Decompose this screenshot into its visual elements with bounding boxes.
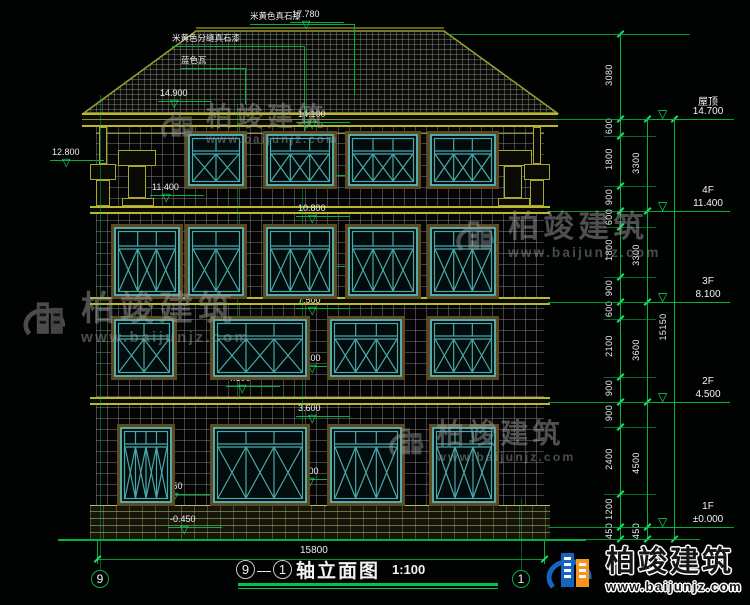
window	[213, 427, 307, 503]
column-shaft	[128, 166, 146, 198]
watermark: 柏竣建筑 www.baijunjz.com	[388, 420, 575, 464]
elevation-value: 14.900	[160, 88, 188, 98]
elevation-triangle-icon: ▽	[306, 477, 314, 488]
corner-pilaster	[530, 180, 544, 206]
dimension-value: 450	[631, 500, 641, 562]
dimension-chain-line	[620, 494, 621, 527]
watermark-site: www.baijunjz.com	[206, 133, 338, 146]
watermark-site: www.baijunjz.com	[508, 245, 661, 260]
column-base	[498, 198, 530, 206]
ground-line	[58, 539, 586, 541]
corner-capital	[524, 164, 550, 180]
window	[114, 227, 180, 296]
window	[348, 134, 418, 186]
site-logo: 柏竣建筑 www.baijunjz.com	[545, 543, 742, 599]
brand-site: www.baijunjz.com	[606, 579, 742, 594]
drawing-title: 9 — 1 轴立面图 1:100	[236, 556, 425, 583]
column-capital	[118, 150, 156, 166]
elevation-line	[168, 527, 222, 528]
elevation-triangle-icon: ▽	[62, 158, 70, 169]
elevation-value: 7.500	[298, 295, 321, 305]
dimension-chain-line	[620, 319, 621, 377]
title-scale: 1:100	[392, 562, 425, 577]
watermark: 柏竣建筑 www.baijunjz.com	[455, 212, 661, 261]
floor-elevation: ±0.000	[676, 514, 740, 525]
grid-bubble-9: 9	[91, 570, 109, 588]
elevation-triangle-icon: ▽	[302, 20, 310, 31]
column-base	[122, 198, 154, 206]
watermark-name: 柏竣建筑	[436, 420, 575, 448]
dimension-value: 3600	[631, 319, 641, 381]
elevation-line	[50, 160, 104, 161]
window	[330, 319, 402, 377]
elevation-value: 3.600	[298, 403, 321, 413]
axis-dash: —	[257, 562, 271, 578]
extension-line	[604, 319, 656, 320]
cad-elevation-drawing: 15800 9 1 9 — 1 轴立面图 1:100 柏竣建筑 www.baij…	[0, 0, 750, 605]
window-glazing	[430, 319, 496, 377]
watermark-logo-icon	[455, 213, 500, 260]
elevation-line	[150, 195, 204, 196]
window	[430, 319, 496, 377]
watermark-site: www.baijunjz.com	[436, 450, 575, 464]
window	[430, 134, 496, 186]
extension-line	[548, 402, 700, 403]
window-glazing	[266, 227, 334, 296]
leader-line	[181, 68, 245, 69]
elevation-triangle-icon: ▽	[308, 414, 316, 425]
elevation-value: -0.450	[170, 514, 196, 524]
watermark: 柏竣建筑 www.baijunjz.com	[160, 104, 338, 146]
leader-line	[250, 24, 354, 25]
extension-line	[604, 494, 656, 495]
column-shaft	[504, 166, 522, 198]
watermark-site: www.baijunjz.com	[81, 329, 250, 346]
elevation-line	[296, 308, 350, 309]
roof-outline	[0, 0, 750, 130]
leader-line	[172, 46, 304, 47]
title-underline-thin	[238, 588, 498, 589]
dimension-value: 3300	[631, 132, 641, 194]
extension-line	[604, 427, 656, 428]
leader-line	[354, 24, 355, 94]
elevation-line	[296, 216, 350, 217]
dimension-chain-line	[674, 119, 675, 539]
elevation-triangle-icon: ▽	[308, 214, 316, 225]
extension-line	[556, 119, 734, 120]
watermark-logo-icon	[22, 293, 72, 345]
window	[266, 227, 334, 296]
window-glazing	[348, 227, 418, 296]
extension-line	[604, 277, 656, 278]
dimension-chain-line	[620, 34, 621, 119]
elevation-value: 10.800	[298, 203, 326, 213]
elevation-triangle-icon: ▽	[238, 384, 246, 395]
material-label: 米黄色分缝真石漆	[172, 32, 240, 44]
window-glazing	[188, 227, 244, 296]
extension-line	[604, 377, 656, 378]
dimension-chain-line	[647, 302, 648, 402]
extension-line	[450, 34, 690, 35]
extension-line	[548, 302, 700, 303]
door	[120, 427, 172, 503]
floor-name: 3F	[682, 276, 734, 287]
floor-name: 2F	[682, 376, 734, 387]
floor-elevation: 8.100	[676, 289, 740, 300]
window-glazing	[120, 427, 172, 503]
material-label: 米黄色真石漆	[250, 10, 301, 22]
extension-line	[548, 527, 734, 528]
floor-elevation: 11.400	[676, 198, 740, 209]
extension-line	[604, 186, 656, 187]
window-glazing	[213, 427, 307, 503]
elevation-line	[296, 416, 350, 417]
window-glazing	[114, 227, 180, 296]
corner-post	[533, 127, 541, 164]
overall-width-dimension: 15800	[300, 545, 328, 556]
grid-bubble-1: 1	[512, 570, 530, 588]
corner-capital	[90, 164, 116, 180]
elevation-line	[226, 386, 280, 387]
dimension-chain-line	[620, 136, 621, 186]
watermark-logo-icon	[160, 105, 199, 146]
elevation-value: 12.800	[52, 147, 80, 157]
window-glazing	[330, 319, 402, 377]
dimension-chain-line	[647, 402, 648, 527]
extension-line	[604, 136, 656, 137]
elevation-value: 11.400	[152, 182, 179, 192]
floor-name: 1F	[682, 501, 734, 512]
brand-building-icon	[545, 543, 599, 599]
dimension-chain-line	[620, 427, 621, 494]
elevation-line	[290, 22, 344, 23]
axis-bubble-start: 9	[236, 560, 255, 579]
window-glazing	[348, 134, 418, 186]
floor-name: 4F	[682, 185, 734, 196]
dimension-value: 15150	[658, 296, 668, 358]
title-text: 轴立面图	[296, 556, 380, 583]
elevation-triangle-icon: ▽	[180, 525, 188, 536]
floor-elevation: 4.500	[676, 389, 740, 400]
watermark-logo-icon	[388, 421, 429, 464]
elevation-line	[158, 101, 212, 102]
extension-line	[556, 539, 700, 540]
brick-plinth	[90, 505, 550, 540]
watermark-name: 柏竣建筑	[508, 212, 661, 243]
elevation-triangle-icon: ▽	[308, 306, 316, 317]
elevation-triangle-icon: ▽	[162, 193, 170, 204]
dimension-value: 450	[604, 500, 614, 562]
window-glazing	[430, 134, 496, 186]
dimension-chain-line	[647, 119, 648, 211]
elevation-triangle-icon: ▽	[308, 364, 316, 375]
corner-pilaster	[96, 180, 110, 206]
watermark: 柏竣建筑 www.baijunjz.com	[22, 292, 250, 346]
material-label: 蓝色瓦	[181, 54, 207, 66]
window	[188, 227, 244, 296]
leader-line	[245, 68, 246, 104]
axis-bubble-end: 1	[273, 560, 292, 579]
window	[348, 227, 418, 296]
floor-elevation: 14.700	[676, 106, 740, 117]
brand-name: 柏竣建筑	[606, 548, 742, 577]
dimension-value: 4500	[631, 432, 641, 494]
watermark-name: 柏竣建筑	[81, 292, 250, 326]
watermark-name: 柏竣建筑	[206, 104, 338, 131]
title-underline	[238, 583, 498, 586]
